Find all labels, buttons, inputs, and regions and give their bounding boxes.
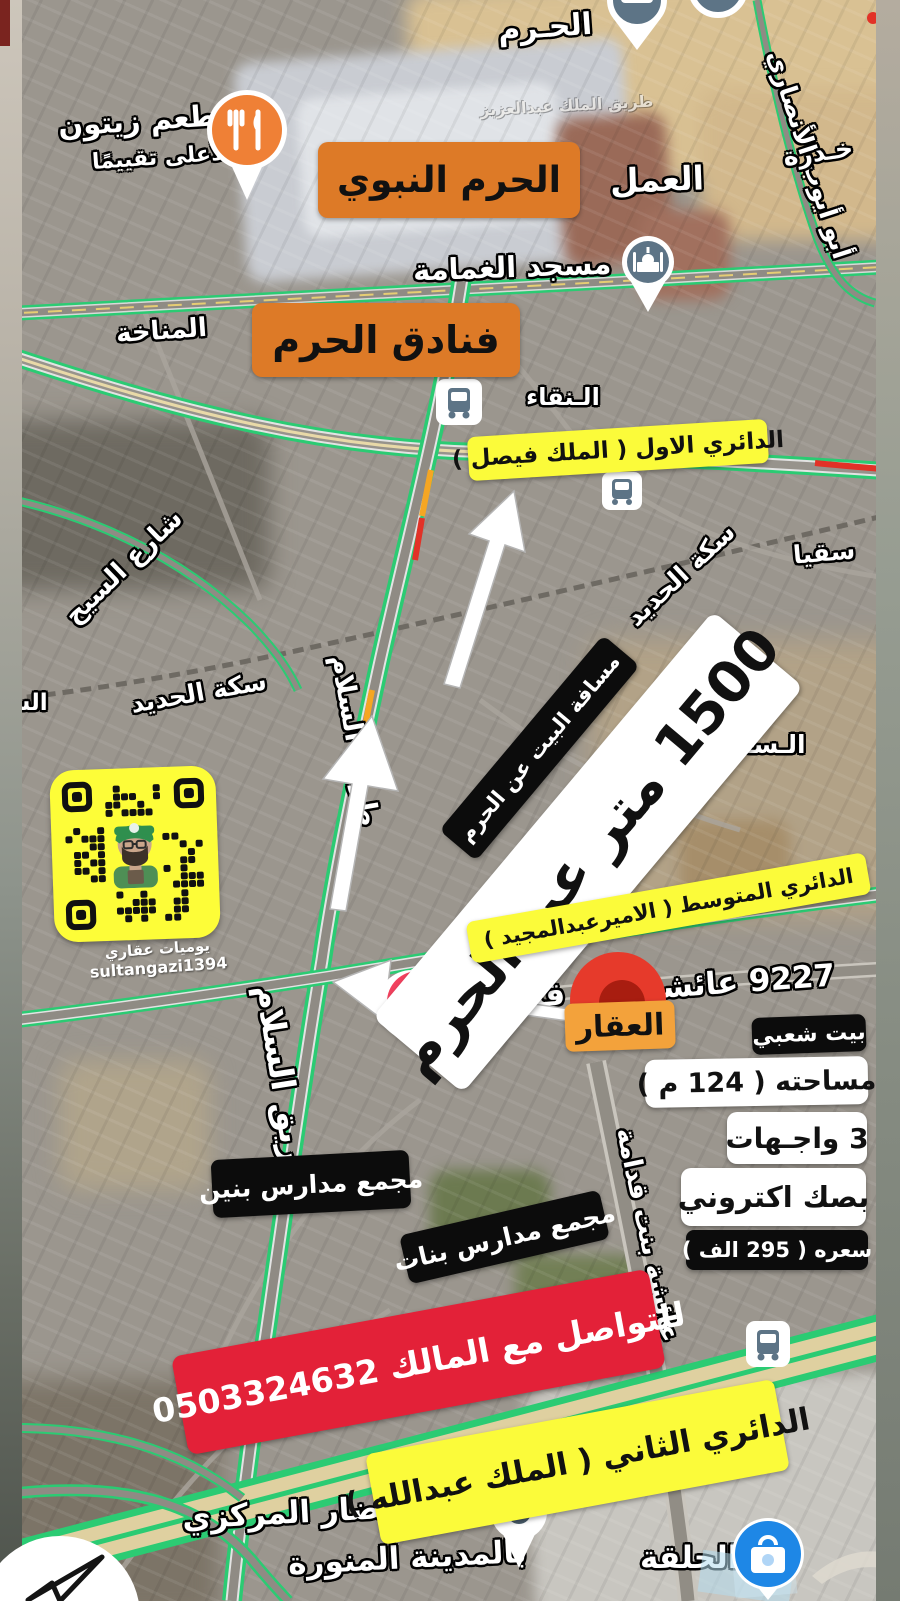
mosque-pin-icon [622,236,674,312]
top-pin-icon [691,0,745,15]
property-box: العقار [564,1000,676,1052]
snapcode-avatar [104,813,167,889]
right-edge-strip [876,0,900,1601]
bus-stop-icon [602,472,642,510]
deed-box: بصك اكتروني [681,1168,866,1226]
restaurant-pin-icon [207,90,287,200]
schools-boys-box: مجمع مدارس بنين [211,1150,412,1218]
area-box: مساحته ( 124 م ) [645,1056,869,1108]
snapcode[interactable] [49,765,221,943]
top-pin-icon [610,0,664,50]
facades-box: 3 واجـهات [727,1112,867,1164]
bus-stop-icon [746,1321,790,1367]
haram-nabawi-box: الحرم النبوي [318,142,580,218]
bus-stop-icon [436,379,482,425]
left-edge-strip [0,0,22,1601]
price-box: سعره ( 295 الف ) [686,1230,868,1270]
house-type-box: بيت شعبي [751,1014,866,1055]
corner-artifact [0,0,10,46]
haram-hotels-box: فنادق الحرم [252,303,520,377]
send-button[interactable] [0,1521,160,1601]
map-story-screenshot: الحـرم أبو أيوب الأنصاري مطعم زيتون الأع… [0,0,900,1601]
